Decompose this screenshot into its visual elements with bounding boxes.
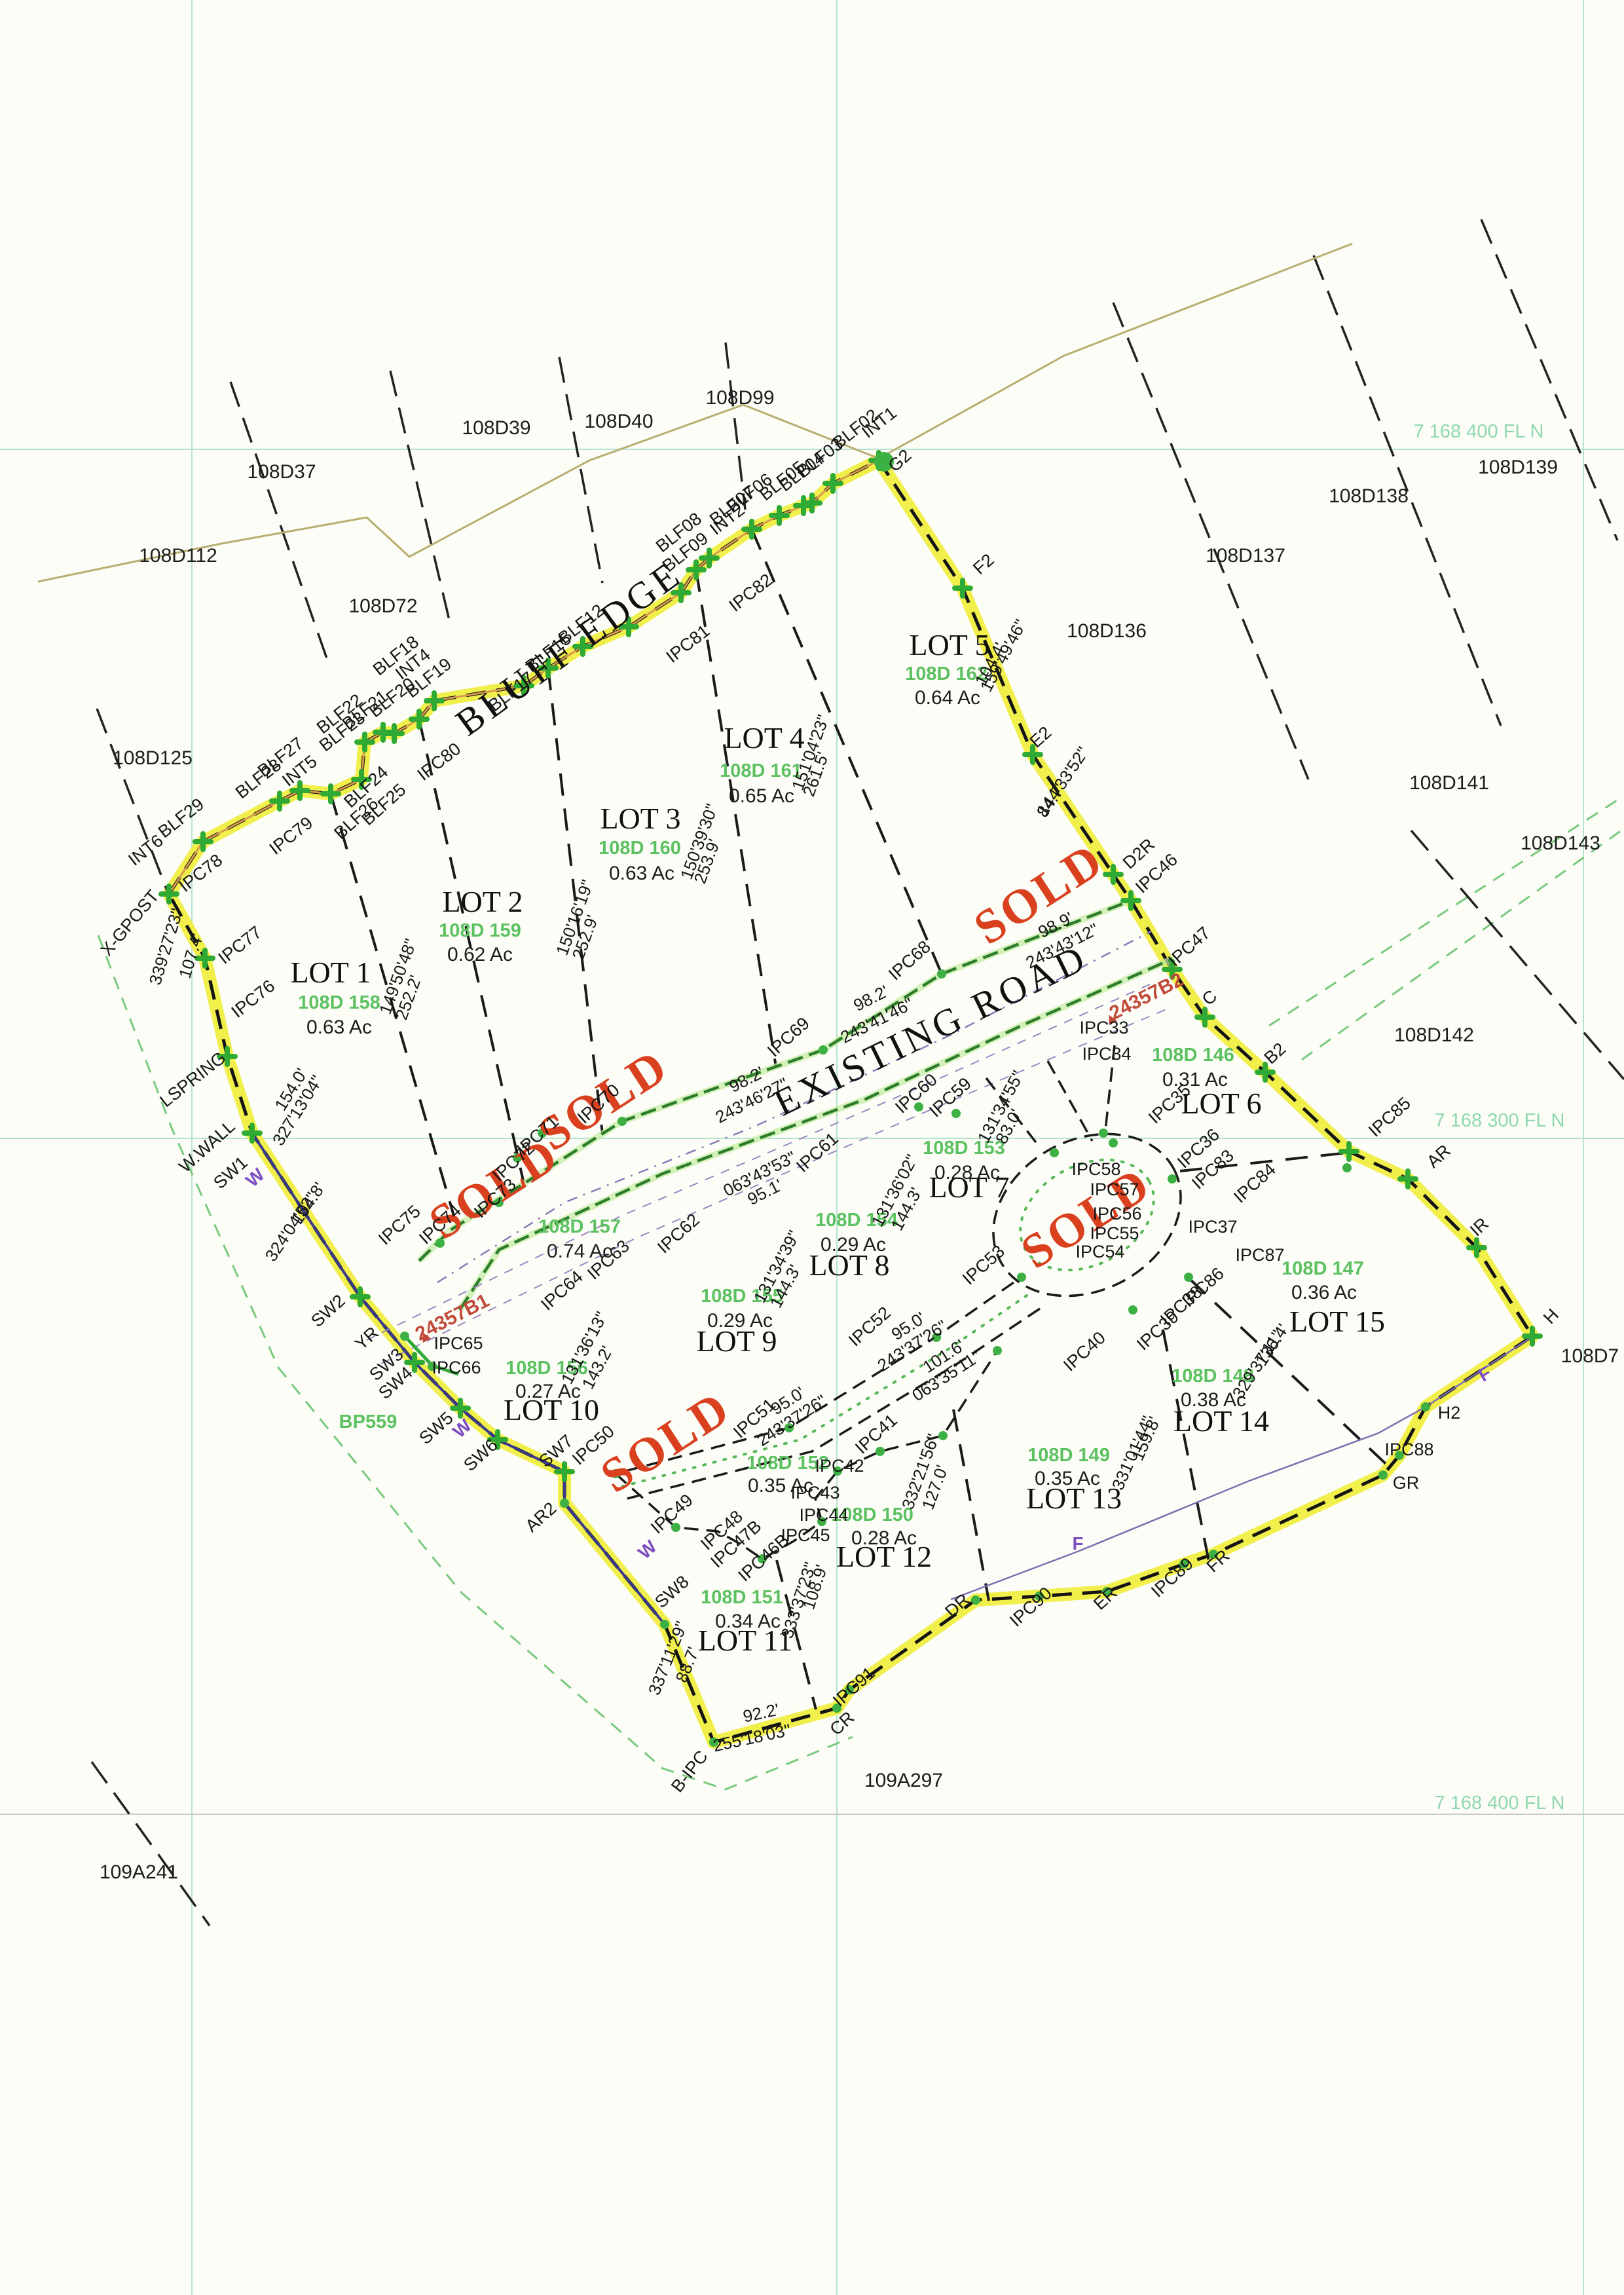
point-label: IPC76	[228, 976, 279, 1022]
point-label: IPC34	[1082, 1044, 1131, 1064]
point-label: IPC53	[959, 1241, 1008, 1289]
map-label: 0.63 Ac	[609, 863, 674, 884]
map-label: 108D37	[247, 461, 316, 483]
point-label: IPC68	[885, 937, 934, 984]
point-label: IPC88	[1384, 1440, 1433, 1459]
neighbor-nw-3	[559, 357, 602, 583]
map-label: W	[634, 1536, 661, 1563]
map-label: 108D112	[139, 545, 217, 567]
sold-stamp: SOLD	[591, 1381, 740, 1503]
survey-dot-33	[660, 1620, 669, 1629]
map-label: 108D141	[1409, 772, 1489, 794]
point-label: IPC44	[799, 1505, 848, 1525]
map-label: 0.29 Ac	[707, 1310, 773, 1332]
map-label: 0.65 Ac	[729, 785, 794, 807]
map-label: BP559	[339, 1411, 397, 1432]
point-label: BLF29	[155, 794, 208, 842]
neighbor-nw-1	[231, 382, 327, 660]
point-label: IPC81	[663, 621, 714, 667]
lotline-13-12	[953, 1409, 989, 1601]
point-label: IPC45	[781, 1525, 830, 1545]
map-label: 108D99	[705, 387, 774, 409]
survey-dot-39	[1017, 1273, 1026, 1282]
map-label: F	[1072, 1533, 1083, 1554]
map-label: 7 168 400 FL N	[1435, 1793, 1565, 1814]
map-label: 0.29 Ac	[821, 1234, 886, 1256]
lot-label: LOT 3	[600, 802, 680, 835]
survey-dot-34	[560, 1499, 569, 1508]
map-label: 0.62 Ac	[447, 944, 513, 965]
survey-dot-8	[951, 1109, 961, 1118]
point-label: IPC47	[1164, 923, 1214, 971]
map-label: 109A297	[864, 1770, 943, 1791]
lot-label: LOT 5	[909, 628, 989, 662]
point-label: H	[1540, 1305, 1562, 1328]
neighbor-ne-1	[1113, 303, 1308, 779]
map-label: 108D143	[1521, 832, 1600, 854]
map-label: 108D136	[1067, 620, 1147, 642]
ne-corridor-1	[1269, 796, 1624, 1026]
point-label: IPC56	[1092, 1204, 1141, 1223]
point-label: IPC77	[215, 922, 266, 968]
point-label: IPC37	[1188, 1217, 1237, 1237]
neighbor-ne-3	[1481, 219, 1617, 540]
point-label: H2	[1438, 1403, 1461, 1423]
neighbor-nw-4	[726, 343, 745, 510]
point-label: IPC33	[1079, 1018, 1128, 1037]
map-label: 0.34 Ac	[715, 1611, 781, 1632]
point-label: IPC79	[266, 813, 317, 859]
point-label: X-GPOST	[97, 886, 163, 960]
point-label: IPC49	[647, 1490, 697, 1538]
point-label: IPC87	[1235, 1245, 1284, 1265]
survey-dot-17	[876, 1447, 885, 1456]
map-label: 108D72	[348, 595, 417, 617]
map-label: 108D39	[462, 417, 530, 439]
lot-label: LOT 15	[1289, 1305, 1385, 1338]
map-label: 0.28 Ac	[934, 1162, 1000, 1184]
survey-dot-5	[819, 1045, 828, 1054]
point-label: LSPRING	[157, 1048, 230, 1111]
point-label: IPC43	[790, 1483, 840, 1502]
survey-dot-21	[1342, 1163, 1352, 1172]
point-label: SW2	[307, 1291, 349, 1331]
lot-label: LOT 2	[442, 885, 523, 918]
survey-dot-38	[1128, 1305, 1137, 1315]
lot-label: LOT 4	[724, 721, 804, 755]
map-label: 0.35 Ac	[1035, 1468, 1100, 1489]
lot-label: LOT 6	[1181, 1087, 1261, 1120]
survey-dot-9	[993, 1346, 1002, 1355]
survey-dot-6	[937, 969, 946, 979]
map-label: 108D 161	[720, 760, 802, 781]
survey-dot-24	[1378, 1470, 1388, 1480]
map-label: 0.63 Ac	[306, 1017, 372, 1038]
map-label: 108D139	[1478, 457, 1558, 478]
point-label: IPC54	[1075, 1242, 1124, 1261]
point-label: IPC80	[414, 739, 465, 785]
map-label: 108D125	[113, 747, 193, 769]
map-label: 0.28 Ac	[851, 1527, 917, 1549]
map-label: 108D 151	[701, 1587, 783, 1608]
point-label: IPC58	[1071, 1159, 1120, 1179]
survey-dot-19	[400, 1332, 409, 1341]
map-label: 108D7	[1561, 1345, 1619, 1367]
bearing-label: 329'37'11"	[1228, 1326, 1287, 1402]
lotline-14-13	[1163, 1330, 1209, 1561]
culdesac-neck-e	[1048, 1061, 1092, 1141]
survey-map-canvas: 108D37108D112108D72108D39108D40108D99108…	[0, 0, 1624, 2295]
survey-dot-37	[1184, 1273, 1193, 1282]
point-label: AR2	[521, 1499, 560, 1536]
survey-dot-40	[1050, 1148, 1059, 1157]
survey-dot-36	[1168, 1174, 1177, 1184]
point-label: IPC75	[375, 1201, 424, 1249]
point-label: AR	[1423, 1141, 1454, 1172]
point-label: IPC52	[845, 1303, 895, 1351]
map-label: 109A241	[100, 1861, 178, 1883]
point-label: IPC55	[1090, 1223, 1139, 1243]
map-label: 0.31 Ac	[1162, 1069, 1228, 1091]
map-label: 108D 157	[538, 1216, 621, 1237]
map-label: 108D 146	[1152, 1045, 1234, 1066]
point-label: IPC66	[432, 1358, 481, 1377]
survey-dot-22	[1421, 1402, 1430, 1411]
point-label: IPC62	[654, 1210, 703, 1258]
map-label: 7 168 400 FL N	[1414, 421, 1544, 442]
map-label: 0.64 Ac	[915, 687, 980, 709]
map-label: 108D142	[1394, 1024, 1474, 1046]
map-label: 108D 159	[439, 920, 521, 941]
point-label: IPC65	[434, 1334, 483, 1353]
map-label: 0.36 Ac	[1291, 1282, 1357, 1303]
survey-dot-41	[1099, 1129, 1108, 1138]
map-label: 108D40	[584, 411, 653, 432]
point-label: IPC64	[537, 1267, 587, 1315]
point-label: F2	[969, 550, 997, 578]
point-label: IPC82	[726, 570, 777, 616]
lot-label: LOT 1	[290, 956, 371, 989]
point-label: IPC42	[815, 1456, 864, 1476]
map-label: 108D 149	[1027, 1445, 1110, 1466]
survey-dot-35	[1109, 1138, 1118, 1147]
map-label: 108D 158	[298, 992, 380, 1013]
map-label: 108D 160	[599, 838, 681, 859]
point-label: IPC84	[1230, 1159, 1280, 1207]
neighbor-nw-2	[390, 371, 451, 625]
map-label: 108D138	[1329, 485, 1409, 507]
map-label: 7 168 300 FL N	[1435, 1110, 1565, 1131]
map-label: 108D 147	[1282, 1258, 1364, 1279]
bearing-label: 331'01'44"	[1108, 1413, 1158, 1493]
point-label: IPC40	[1060, 1328, 1109, 1375]
point-label: IPC57	[1090, 1180, 1139, 1199]
point-label: IPC85	[1365, 1093, 1414, 1141]
plat-map-scan: 108D37108D112108D72108D39108D40108D99108…	[0, 0, 1624, 2295]
point-label: GR	[1393, 1473, 1420, 1493]
map-label: 108D137	[1206, 545, 1285, 567]
